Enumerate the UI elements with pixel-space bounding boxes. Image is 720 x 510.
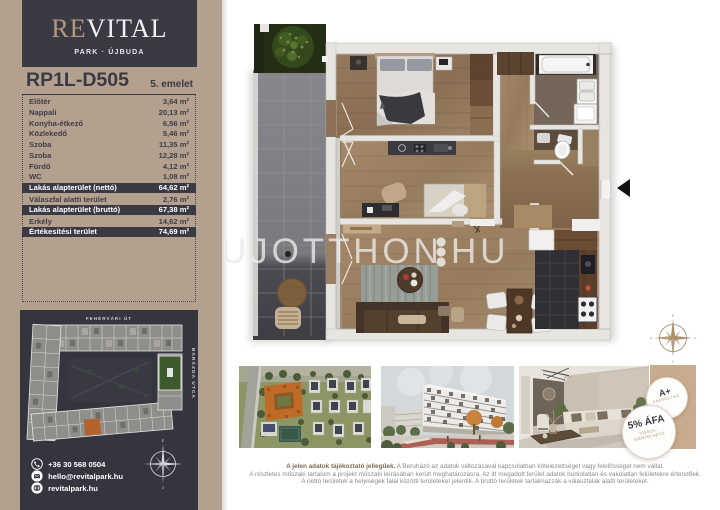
svg-text:É: É — [672, 313, 675, 318]
svg-text:D: D — [162, 486, 165, 490]
svg-text:É: É — [162, 438, 165, 443]
svg-text:N: N — [650, 337, 653, 341]
svg-text:K: K — [694, 337, 697, 341]
svg-text:D: D — [672, 360, 675, 364]
